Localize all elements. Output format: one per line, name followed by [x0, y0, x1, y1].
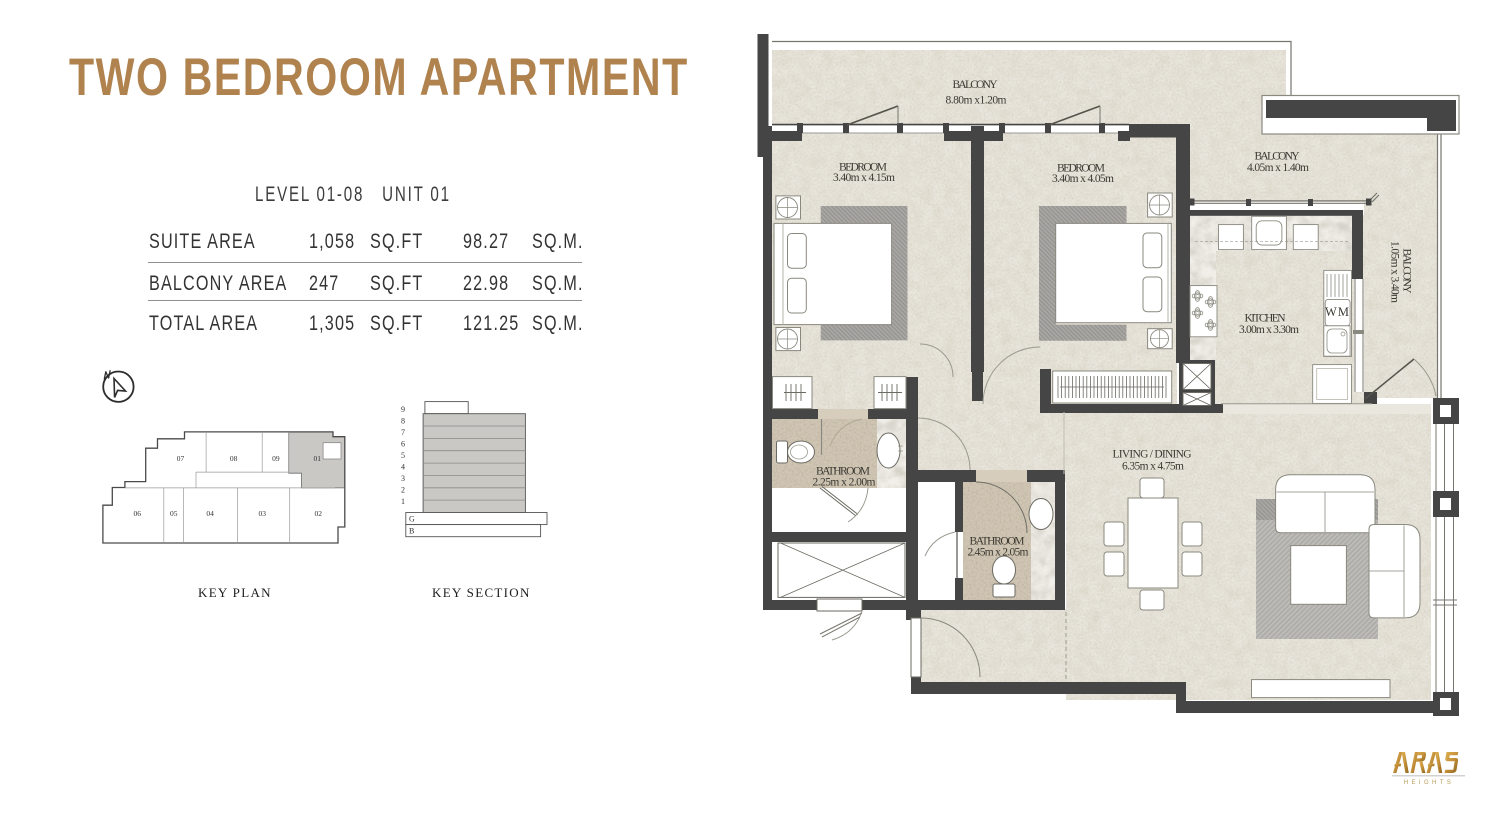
- svg-text:3.40m x 4.15m: 3.40m x 4.15m: [833, 172, 895, 184]
- svg-text:8: 8: [401, 417, 405, 426]
- svg-text:2.45m x 2.05m: 2.45m x 2.05m: [968, 547, 1029, 559]
- svg-text:06: 06: [134, 509, 142, 518]
- svg-text:3: 3: [401, 474, 405, 483]
- svg-text:G: G: [409, 515, 415, 524]
- svg-text:01: 01: [313, 454, 321, 463]
- svg-text:LIVING / DINING: LIVING / DINING: [1113, 449, 1194, 461]
- svg-text:4: 4: [401, 463, 405, 472]
- svg-text:9: 9: [401, 405, 405, 414]
- svg-text:BALCONY: BALCONY: [1401, 249, 1413, 296]
- svg-text:8.80m x1.20m: 8.80m x1.20m: [946, 95, 1007, 107]
- svg-text:BALCONY: BALCONY: [1255, 151, 1302, 163]
- svg-text:09: 09: [272, 454, 280, 463]
- svg-text:03: 03: [258, 509, 266, 518]
- svg-text:3.00m x 3.30m: 3.00m x 3.30m: [1239, 324, 1299, 336]
- svg-text:HEIGHTS: HEIGHTS: [1404, 780, 1454, 786]
- svg-text:WM: WM: [1325, 305, 1349, 319]
- svg-text:KITCHEN: KITCHEN: [1245, 313, 1288, 325]
- svg-text:6.35m x 4.75m: 6.35m x 4.75m: [1122, 461, 1184, 473]
- svg-text:04: 04: [206, 509, 214, 518]
- svg-text:3.40m x 4.05m: 3.40m x 4.05m: [1052, 173, 1114, 185]
- svg-text:6: 6: [401, 440, 405, 449]
- svg-text:1.05m x 3.40m: 1.05m x 3.40m: [1389, 241, 1401, 303]
- svg-text:2.25m x 2.00m: 2.25m x 2.00m: [813, 477, 876, 489]
- svg-text:B: B: [409, 527, 414, 536]
- svg-text:2: 2: [401, 486, 405, 495]
- svg-text:7: 7: [401, 428, 405, 437]
- svg-text:BALCONY: BALCONY: [953, 79, 1000, 91]
- svg-text:5: 5: [401, 451, 405, 460]
- svg-text:07: 07: [177, 454, 185, 463]
- svg-text:4.05m x 1.40m: 4.05m x 1.40m: [1247, 162, 1309, 174]
- svg-text:02: 02: [314, 509, 322, 518]
- svg-text:08: 08: [230, 454, 238, 463]
- svg-text:1: 1: [401, 497, 405, 506]
- svg-text:05: 05: [170, 509, 178, 518]
